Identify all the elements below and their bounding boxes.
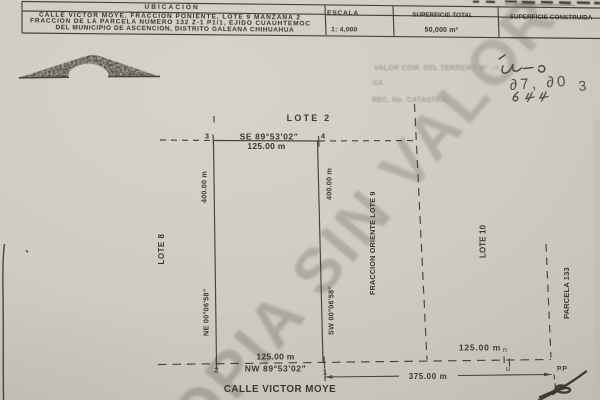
svg-text:NW 89°53'02": NW 89°53'02" bbox=[245, 364, 307, 374]
svg-text:125.00 m: 125.00 m bbox=[256, 352, 294, 362]
svg-text:1: 4,000: 1: 4,000 bbox=[331, 26, 358, 33]
svg-text:n: n bbox=[503, 347, 507, 354]
svg-text:u: u bbox=[506, 366, 510, 373]
svg-text:PARCELA 133: PARCELA 133 bbox=[562, 267, 571, 319]
svg-text:FRACCION ORIENTE LOTE 9: FRACCION ORIENTE LOTE 9 bbox=[368, 191, 377, 295]
svg-text:125.00 m: 125.00 m bbox=[459, 343, 501, 353]
svg-text:P.P: P.P bbox=[557, 366, 568, 373]
svg-text:375.00 m: 375.00 m bbox=[409, 372, 448, 381]
svg-text:LOTE 2: LOTE 2 bbox=[287, 113, 332, 123]
svg-text:CA: CA bbox=[373, 80, 383, 87]
svg-text:SUPERFICIE CONSTRUIDA: SUPERFICIE CONSTRUIDA bbox=[510, 14, 593, 22]
svg-text:SE 89°53'02": SE 89°53'02" bbox=[240, 132, 299, 142]
svg-text:LOTE 8: LOTE 8 bbox=[157, 233, 166, 264]
svg-text:50,000 m²: 50,000 m² bbox=[424, 27, 458, 34]
svg-text:1: 1 bbox=[323, 368, 327, 377]
svg-text:SUPERFICIE TOTAL: SUPERFICIE TOTAL bbox=[412, 11, 473, 19]
svg-text:3: 3 bbox=[205, 132, 209, 141]
svg-text:CALLE VICTOR MOYE: CALLE VICTOR MOYE bbox=[224, 384, 336, 395]
svg-text:LOTE 10: LOTE 10 bbox=[479, 224, 488, 258]
svg-text:NE 00°06'58": NE 00°06'58" bbox=[202, 288, 211, 336]
svg-text:2: 2 bbox=[214, 366, 218, 375]
svg-text:400.00 m: 400.00 m bbox=[200, 171, 209, 203]
svg-text:400.00 m: 400.00 m bbox=[325, 168, 334, 200]
svg-text:VALOR COM. DEL TERRENO M² ..=: VALOR COM. DEL TERRENO M² ..= bbox=[374, 65, 499, 72]
svg-text:ESCALA: ESCALA bbox=[327, 10, 359, 17]
svg-text:SW 00°06'58": SW 00°06'58" bbox=[327, 286, 336, 335]
svg-text:125.00 m: 125.00 m bbox=[247, 141, 285, 151]
svg-text:REC. No. CATASTRAL...: REC. No. CATASTRAL... bbox=[372, 97, 458, 104]
